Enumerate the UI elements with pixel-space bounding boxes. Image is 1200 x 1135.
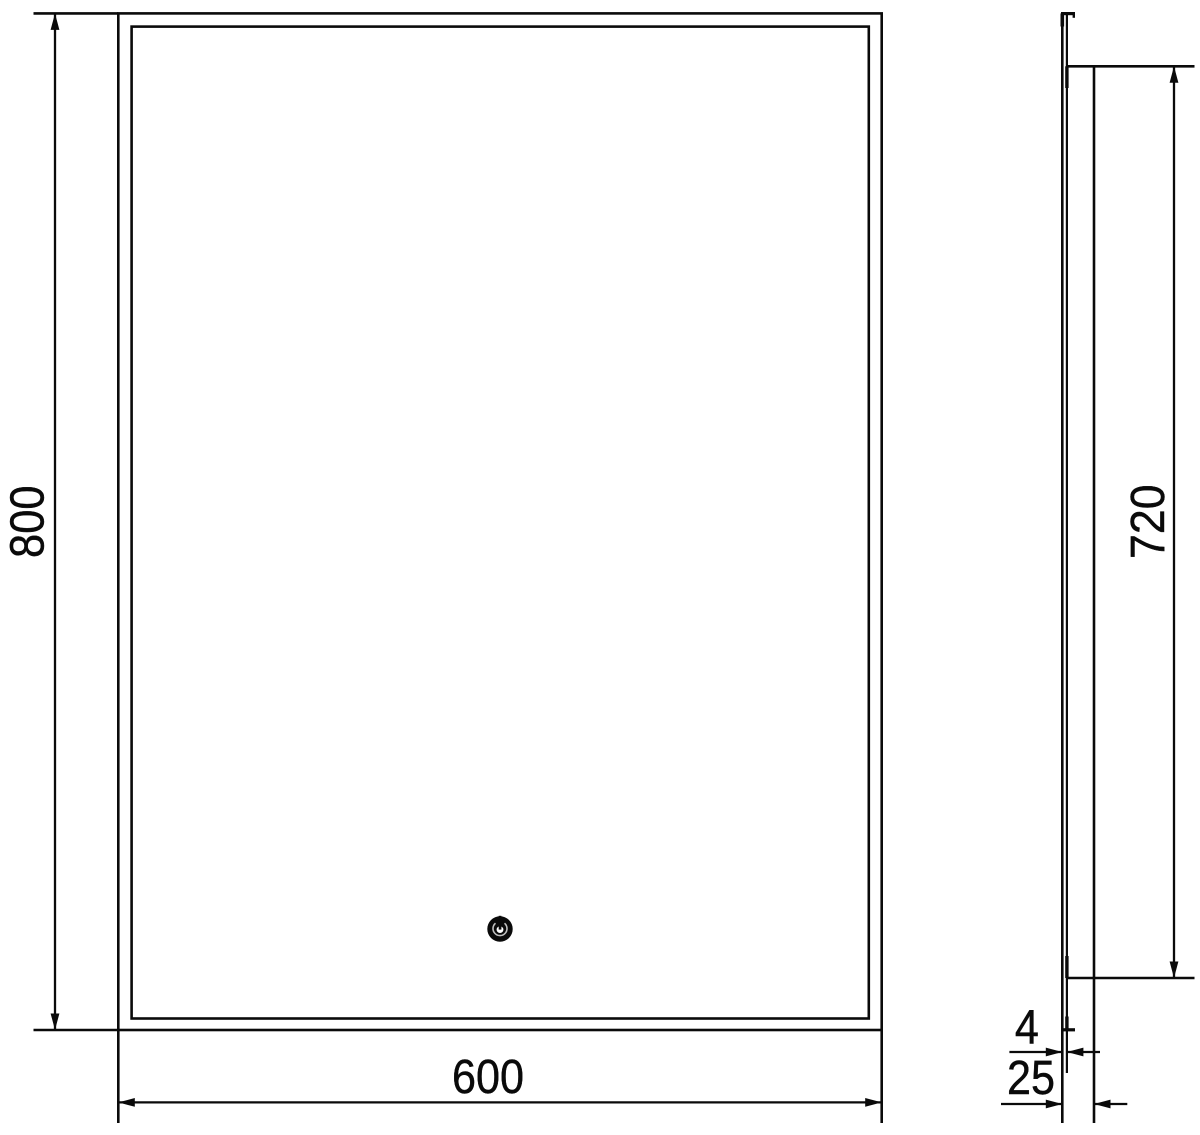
svg-text:720: 720 bbox=[1122, 484, 1175, 559]
svg-text:25: 25 bbox=[1007, 1052, 1055, 1105]
svg-text:800: 800 bbox=[1, 485, 54, 558]
svg-text:600: 600 bbox=[452, 1051, 524, 1104]
svg-text:4: 4 bbox=[1015, 1001, 1039, 1054]
